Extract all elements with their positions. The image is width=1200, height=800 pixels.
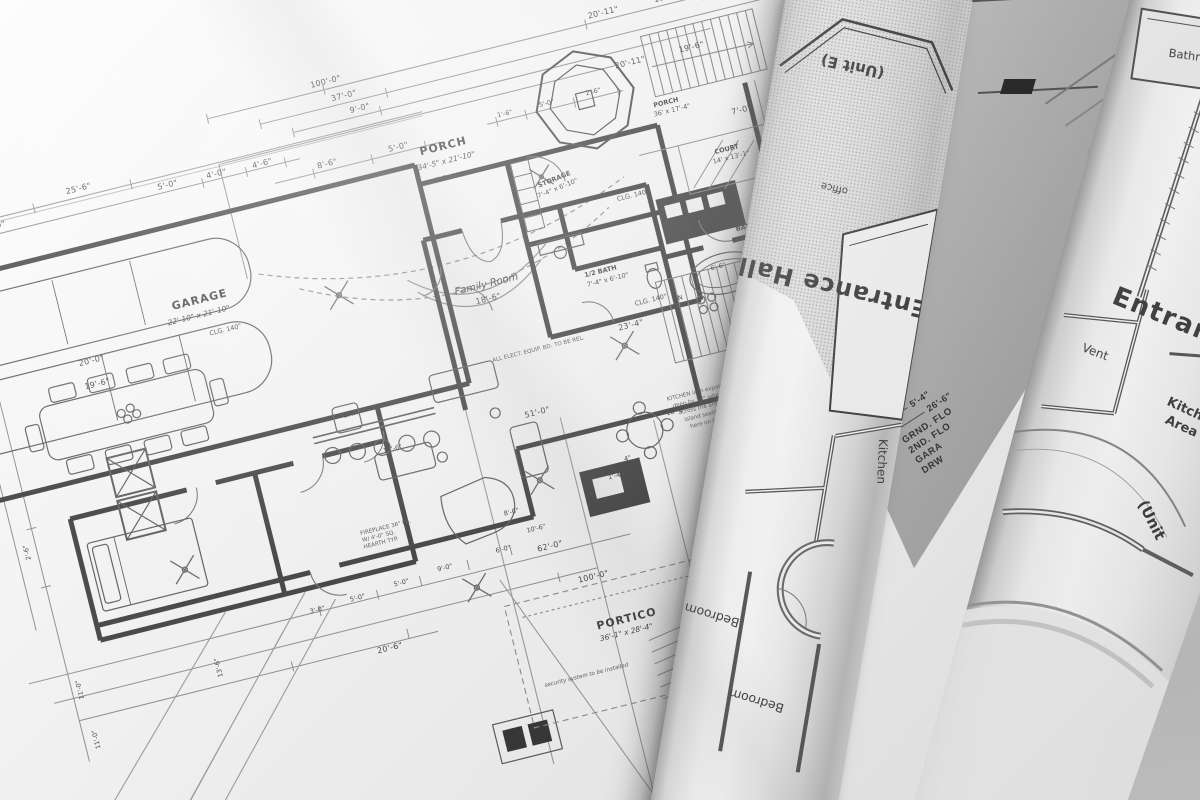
blueprint-photo: GARAGE 22'-10" x 21'-10" STORAGE 7'-4" x… [0,0,1200,800]
bedroom-label: Bedroom [727,686,785,716]
entrance-label: Entrance H [1108,281,1200,375]
kitchen-label: Kitchen [874,439,890,485]
roll-left-curl [640,797,834,800]
dark-wall-block [1000,79,1036,94]
vent-label: Vent [1080,340,1110,363]
unit-label: (Unit [1134,497,1169,543]
strip-line [978,86,1098,94]
strip-line [955,0,1125,3]
bedroom-label: Bedroom [683,600,741,630]
